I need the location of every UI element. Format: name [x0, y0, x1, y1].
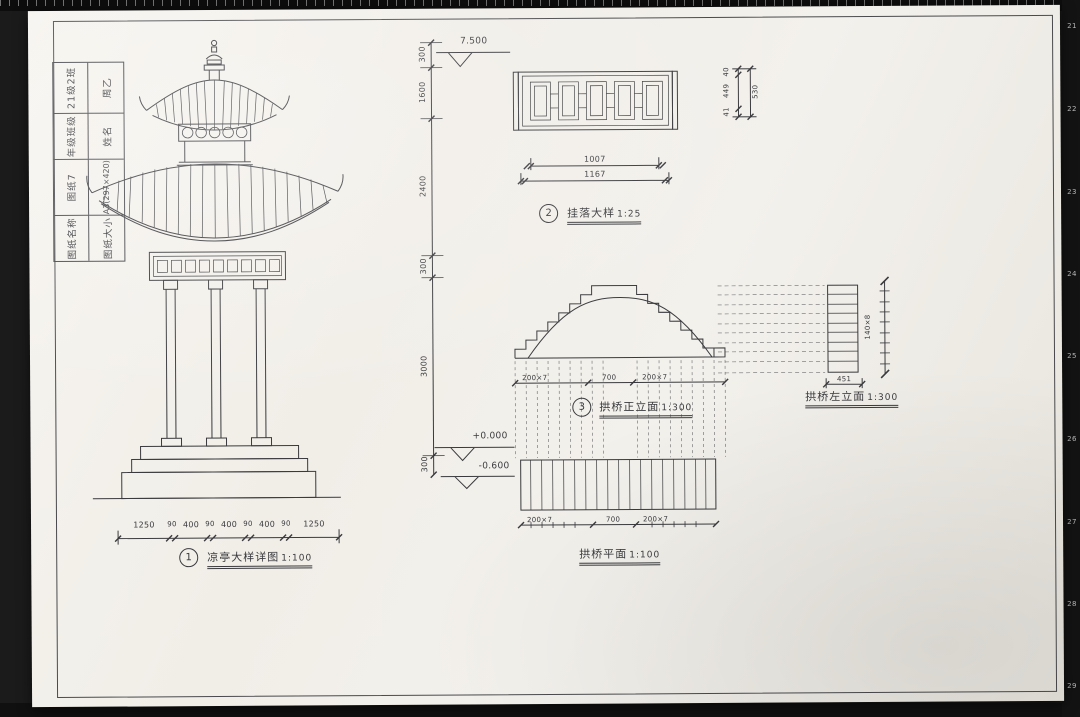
guazhao-drawing — [513, 71, 677, 130]
ruler-number: 27 — [1067, 518, 1077, 526]
dim-label: 300 — [419, 246, 428, 286]
bridge-side-caption: 拱桥左立面1:300 — [805, 388, 898, 407]
caption-scale: 1:100 — [281, 553, 312, 563]
dim-label: 530 — [751, 77, 759, 107]
dim-label: 3000 — [419, 346, 428, 386]
caption-scale: 1:300 — [867, 393, 898, 403]
dim-label: 140×8 — [864, 307, 872, 347]
dim-label: 200×7 — [643, 515, 668, 523]
dim-label: 700 — [602, 374, 616, 382]
caption-scale: 1:100 — [629, 550, 660, 560]
cutting-mat-left — [0, 0, 32, 717]
elevation-label: 7.500 — [460, 36, 487, 46]
photo-of-drawing: { "colors": {"background":"#161616","pap… — [0, 0, 1080, 717]
dim-label: 400 — [181, 520, 201, 529]
dim-label: 200×7 — [642, 373, 667, 381]
dim-label: 200×7 — [522, 374, 547, 382]
caption-text: 挂落大样 — [567, 207, 615, 220]
ruler-number: 25 — [1067, 352, 1077, 360]
callout-2: 2 — [539, 204, 558, 223]
paper-sheet: 图纸名称 图纸7 年级班级 21级2班 图纸大小 A3(297×420) 姓名 … — [28, 5, 1064, 707]
ruler-number: 23 — [1067, 188, 1077, 196]
dim-label: 90 — [240, 520, 256, 528]
caption-text: 凉亭大样详图 — [207, 551, 279, 564]
pavilion-caption: 凉亭大样详图1:100 — [207, 548, 312, 567]
caption-text: 拱桥平面 — [579, 548, 627, 561]
dim-label: 90 — [278, 520, 294, 528]
ruler-number: 26 — [1067, 435, 1077, 443]
pavilion-drawing — [86, 40, 345, 499]
right-ruler: 21 22 23 24 25 26 27 28 29 — [1062, 0, 1080, 717]
ruler-number: 21 — [1067, 22, 1077, 30]
guazhao-caption: 挂落大样1:25 — [567, 204, 641, 222]
callout-3: 3 — [572, 398, 591, 417]
dim-label: 200×7 — [527, 516, 552, 524]
dim-label: 1250 — [300, 519, 328, 528]
dim-label: 1007 — [575, 155, 615, 164]
callout-1: 1 — [179, 548, 198, 567]
dim-label: 1250 — [130, 520, 158, 529]
dim-label: 300 — [420, 444, 429, 484]
caption-scale: 1:25 — [617, 209, 641, 219]
bridge-plan-caption: 拱桥平面1:100 — [579, 545, 660, 563]
dim-label: 400 — [219, 520, 239, 529]
elevation-label: +0.000 — [472, 431, 507, 441]
caption-text: 拱桥正立面 — [599, 400, 659, 413]
dim-label: 90 — [164, 520, 180, 528]
dim-label: 41 — [722, 97, 730, 127]
dim-label: 400 — [257, 520, 277, 529]
ruler-number: 22 — [1067, 105, 1077, 113]
dim-label: 300 — [418, 34, 427, 74]
ruler-number: 28 — [1067, 600, 1077, 608]
dim-label: 451 — [830, 375, 858, 383]
bridge-plan-drawing — [521, 459, 716, 510]
pavilion-height-chain — [420, 39, 515, 489]
dim-label: 90 — [202, 520, 218, 528]
bridge-front-drawing — [515, 285, 726, 458]
ruler-number: 29 — [1067, 682, 1077, 690]
dim-label: 1167 — [575, 170, 615, 179]
ruler-number: 24 — [1067, 270, 1077, 278]
dim-label: 1600 — [418, 72, 427, 112]
caption-scale: 1:300 — [661, 403, 692, 413]
bridge-side-drawing — [718, 285, 859, 373]
caption-text: 拱桥左立面 — [805, 390, 865, 403]
dim-label: 2400 — [418, 166, 427, 206]
pavilion-dim-chain — [115, 529, 342, 544]
drawing-linework — [28, 5, 1064, 707]
elevation-label: -0.600 — [479, 461, 510, 471]
dim-label: 700 — [606, 516, 620, 524]
bridge-front-caption: 拱桥正立面1:300 — [599, 398, 692, 417]
